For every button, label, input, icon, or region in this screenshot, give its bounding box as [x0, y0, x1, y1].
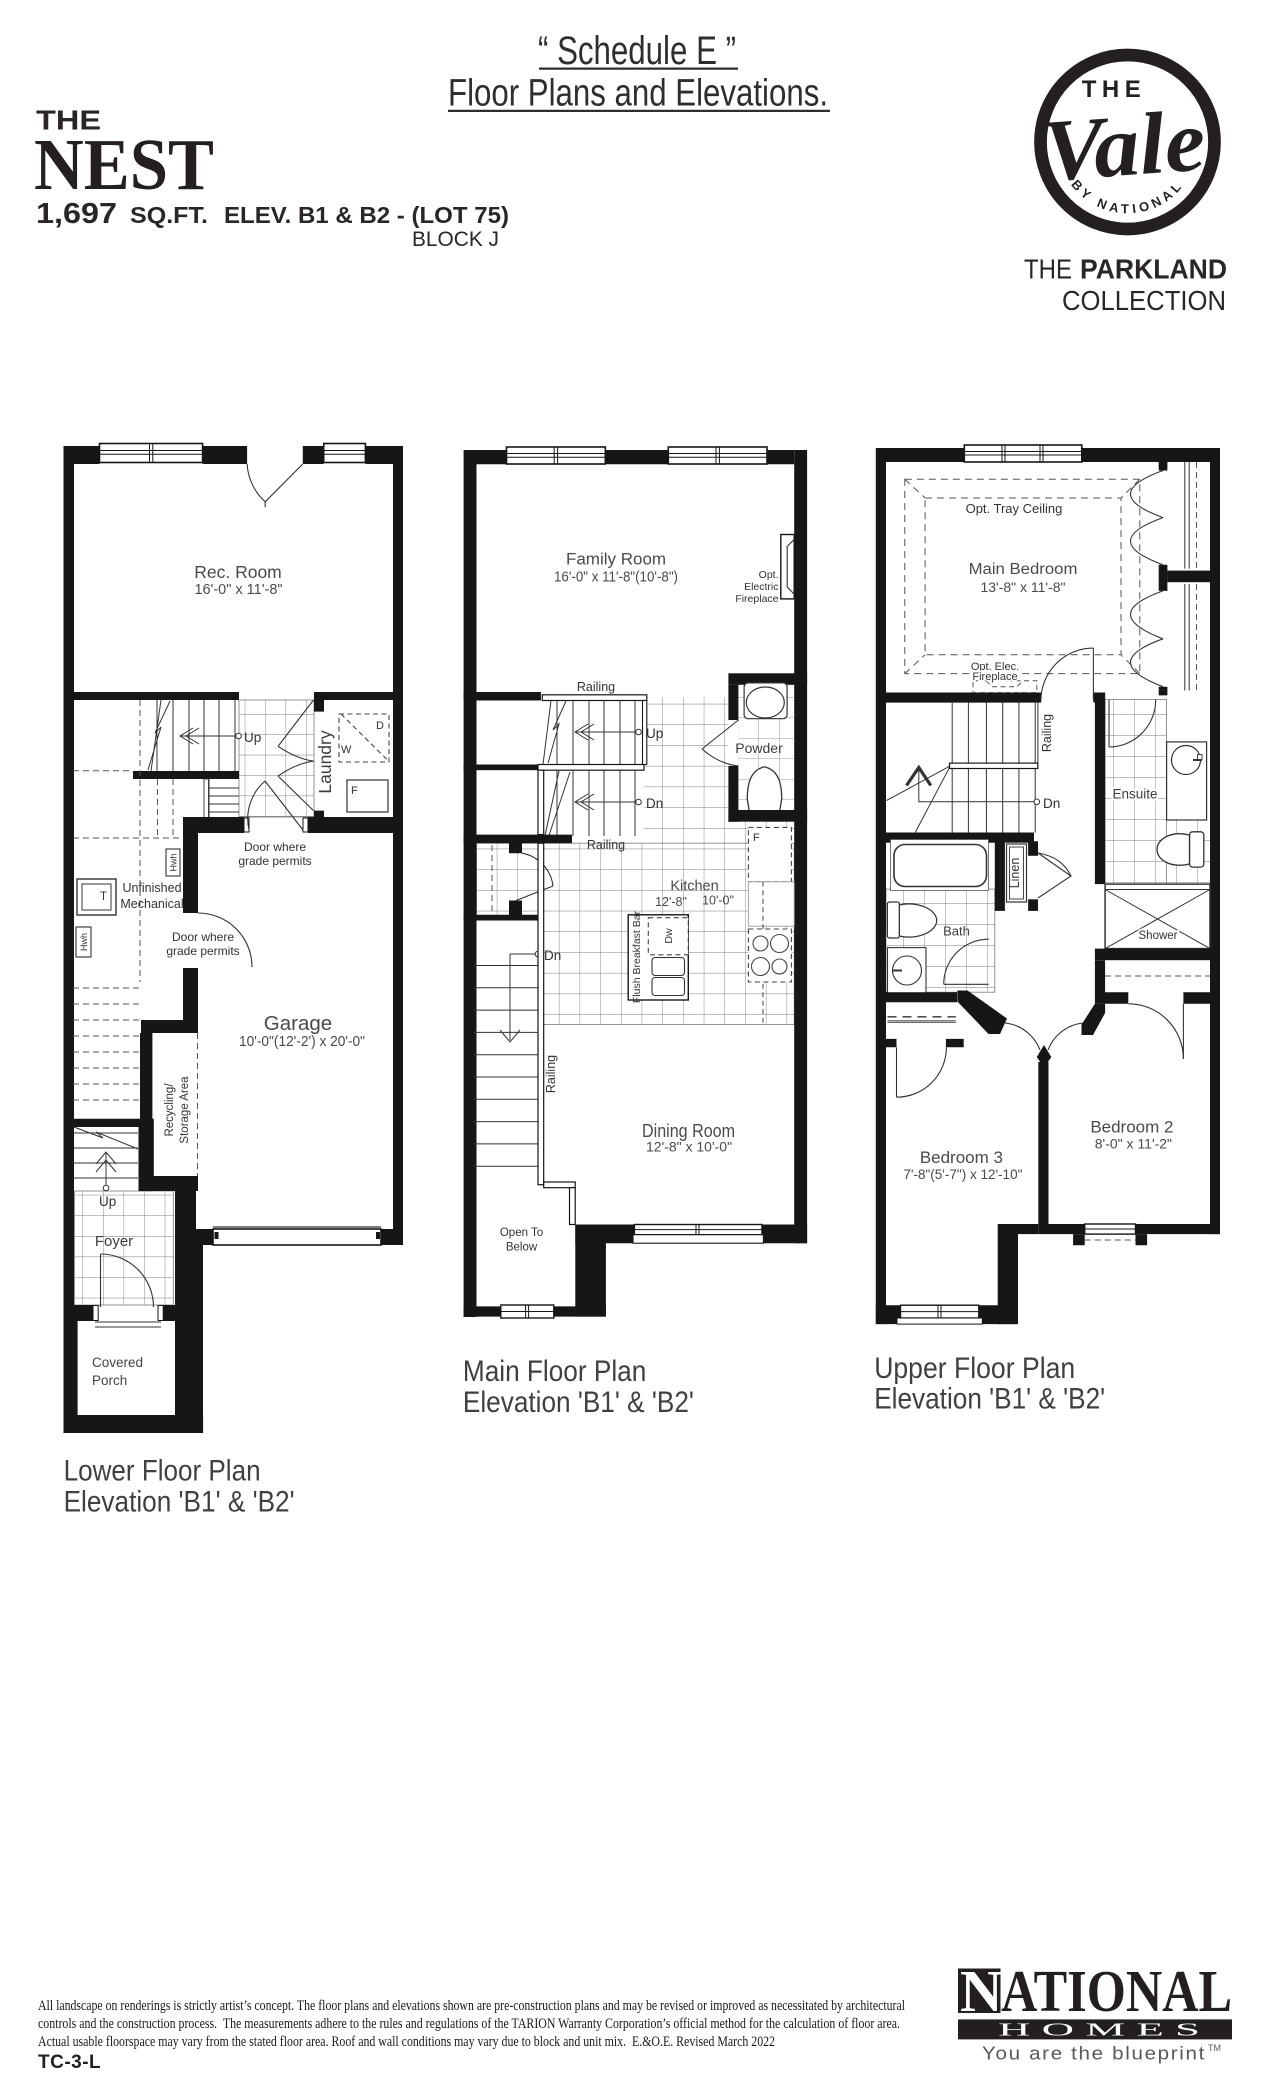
svg-text:Dw: Dw	[663, 928, 675, 944]
svg-text:Up: Up	[646, 726, 663, 741]
svg-text:Lower Floor Plan: Lower Floor Plan	[64, 1455, 261, 1488]
svg-text:W: W	[341, 744, 352, 756]
svg-text:Linen: Linen	[1008, 858, 1022, 889]
svg-text:Open To: Open To	[500, 1227, 543, 1239]
svg-text:NEST: NEST	[34, 124, 214, 205]
svg-text:SQ.FT.: SQ.FT.	[130, 202, 208, 228]
svg-text:Garage: Garage	[264, 1012, 332, 1035]
svg-text:ATIONAL: ATIONAL	[1001, 1960, 1232, 2024]
svg-text:ELEV. B1 & B2 - (LOT 75): ELEV. B1 & B2 - (LOT 75)	[224, 202, 509, 228]
svg-text:THE: THE	[1024, 254, 1072, 285]
svg-text:Fireplace: Fireplace	[972, 671, 1017, 683]
svg-text:Fireplace: Fireplace	[735, 593, 778, 605]
svg-text:Covered: Covered	[92, 1355, 143, 1370]
svg-text:16'-0" x 11'-8": 16'-0" x 11'-8"	[194, 582, 282, 598]
svg-text:10'-0": 10'-0"	[702, 894, 734, 908]
svg-text:Below: Below	[506, 1242, 538, 1254]
svg-text:Elevation 'B1' & 'B2': Elevation 'B1' & 'B2'	[64, 1486, 295, 1519]
svg-text:Porch: Porch	[92, 1373, 127, 1388]
svg-text:Foyer: Foyer	[95, 1233, 133, 1250]
svg-text:F: F	[351, 785, 358, 797]
svg-text:COLLECTION: COLLECTION	[1062, 285, 1226, 316]
svg-text:Shower: Shower	[1139, 930, 1178, 942]
svg-text:PARKLAND: PARKLAND	[1080, 254, 1227, 285]
svg-text:Elevation 'B1' & 'B2': Elevation 'B1' & 'B2'	[874, 1383, 1105, 1416]
svg-text:Hwh: Hwh	[79, 933, 89, 951]
svg-text:TM: TM	[1208, 2043, 1221, 2053]
svg-text:12'-8" x 10'-0": 12'-8" x 10'-0"	[646, 1139, 732, 1155]
svg-text:Rec. Room: Rec. Room	[194, 562, 282, 582]
svg-text:Bedroom 3: Bedroom 3	[920, 1148, 1003, 1167]
svg-text:Ensuite: Ensuite	[1112, 787, 1157, 802]
svg-text:Storage Area: Storage Area	[179, 1076, 191, 1144]
svg-text:Railing: Railing	[577, 680, 615, 694]
svg-text:All landscape on renderings is: All landscape on renderings is strictly …	[38, 1998, 905, 2014]
svg-text:13'-8" x 11'-8": 13'-8" x 11'-8"	[980, 579, 1065, 595]
svg-text:12'-8": 12'-8"	[655, 895, 687, 909]
svg-text:Hwh: Hwh	[169, 853, 179, 871]
svg-text:T: T	[100, 891, 107, 903]
svg-text:Railing: Railing	[544, 1055, 558, 1093]
svg-text:controls and the construction: controls and the construction process. T…	[38, 2016, 900, 2032]
svg-text:Main Floor Plan: Main Floor Plan	[463, 1355, 646, 1388]
svg-text:grade permits: grade permits	[238, 854, 311, 868]
svg-text:Unfinished: Unfinished	[122, 881, 181, 895]
svg-text:Electric: Electric	[744, 581, 778, 593]
svg-text:N: N	[960, 1960, 1003, 2024]
svg-text:Bath: Bath	[943, 924, 970, 939]
svg-text:Flush Breakfast Bar: Flush Breakfast Bar	[631, 910, 643, 1003]
svg-text:Laundry: Laundry	[315, 730, 335, 793]
svg-text:Railing: Railing	[587, 838, 625, 852]
svg-text:Dn: Dn	[544, 948, 561, 963]
svg-text:Upper Floor Plan: Upper Floor Plan	[874, 1352, 1075, 1385]
svg-text:F: F	[753, 832, 760, 844]
svg-text:H O M E S: H O M E S	[998, 2019, 1200, 2039]
svg-text:Main Bedroom: Main Bedroom	[969, 561, 1078, 578]
svg-text:Recycling/: Recycling/	[164, 1083, 176, 1137]
svg-text:TC-3-L: TC-3-L	[38, 2052, 101, 2073]
svg-text:Opt. Tray Ceiling: Opt. Tray Ceiling	[966, 501, 1063, 516]
svg-text:Family Room: Family Room	[566, 550, 666, 569]
svg-text:10'-0"(12'-2') x 20'-0": 10'-0"(12'-2') x 20'-0"	[239, 1033, 365, 1050]
svg-text:Opt.: Opt.	[759, 569, 779, 581]
svg-text:Dn: Dn	[646, 796, 663, 811]
svg-text:Up: Up	[99, 1194, 116, 1209]
svg-text:Railing: Railing	[1040, 714, 1054, 752]
svg-text:You are the blueprint: You are the blueprint	[982, 2042, 1206, 2063]
svg-text:BLOCK J: BLOCK J	[412, 228, 499, 251]
svg-text:Dn: Dn	[1043, 796, 1060, 811]
svg-text:7'-8"(5'-7") x 12'-10": 7'-8"(5'-7") x 12'-10"	[903, 1166, 1022, 1182]
svg-text:“ Schedule E ”: “ Schedule E ”	[538, 29, 736, 73]
svg-text:D: D	[376, 720, 384, 732]
svg-text:1,697: 1,697	[36, 198, 117, 230]
svg-text:8'-0" x 11'-2": 8'-0" x 11'-2"	[1095, 1136, 1172, 1152]
svg-text:Kitchen: Kitchen	[670, 879, 718, 895]
svg-text:16'-0" x 11'-8"(10'-8"): 16'-0" x 11'-8"(10'-8")	[554, 570, 678, 586]
svg-text:Up: Up	[244, 730, 261, 745]
svg-text:Elevation 'B1' & 'B2': Elevation 'B1' & 'B2'	[463, 1386, 694, 1419]
svg-text:Powder: Powder	[735, 740, 783, 756]
svg-text:Bedroom 2: Bedroom 2	[1090, 1118, 1173, 1137]
svg-text:Actual usable floorspace may v: Actual usable floorspace may vary from t…	[38, 2034, 775, 2050]
svg-text:Mechanical: Mechanical	[120, 897, 183, 911]
svg-text:grade permits: grade permits	[166, 944, 239, 958]
svg-text:Door where: Door where	[244, 840, 306, 854]
svg-text:Door where: Door where	[172, 930, 234, 944]
